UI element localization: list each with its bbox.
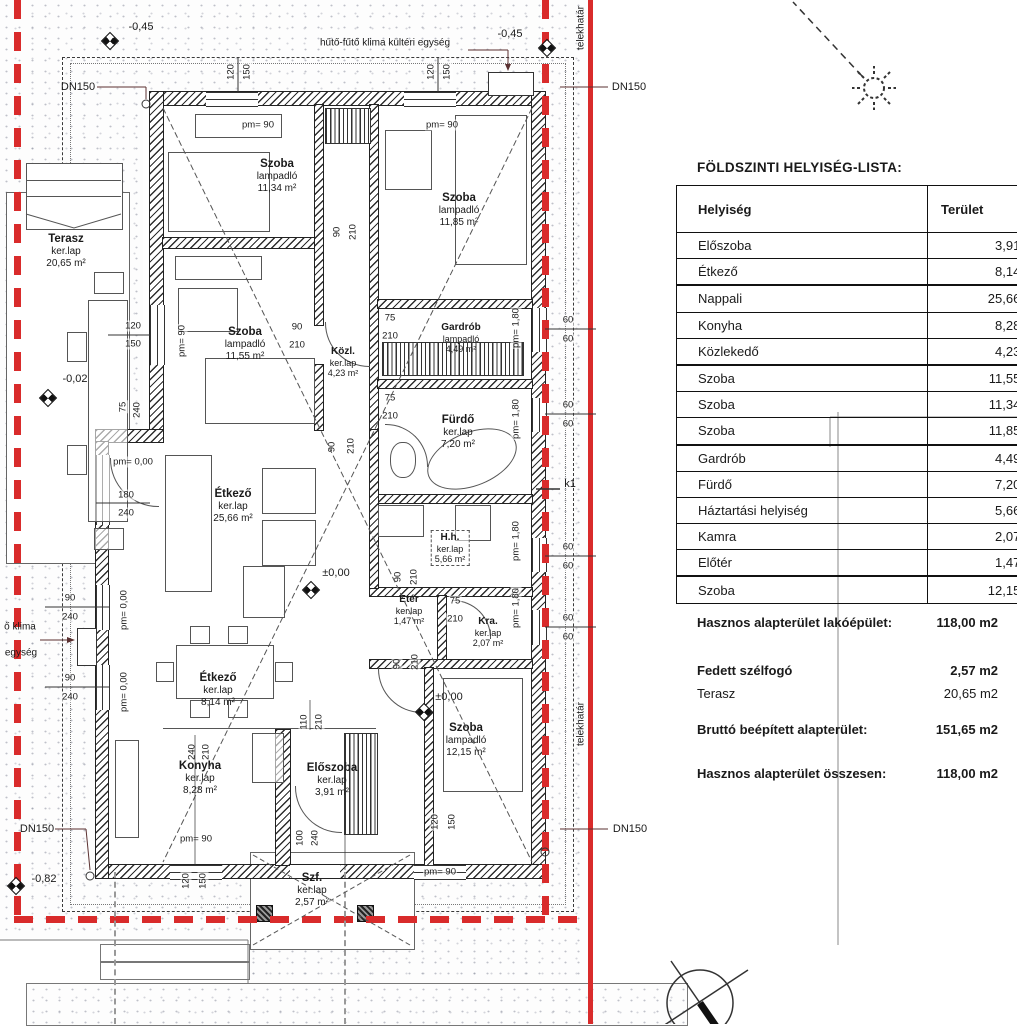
klima-outdoor-unit [488, 72, 534, 96]
dimension-label: 210 [381, 331, 399, 342]
annotation-label: telekhatár [576, 702, 587, 746]
coffee-table [243, 566, 285, 618]
annotation-label: hűtő-fűtő klima kültéri egység [320, 38, 450, 49]
dimension-label: 90 [64, 673, 77, 684]
dimension-label: 75 [118, 401, 129, 414]
site-plan-page: { "colors":{"boundary_red":"#d92b2b","wa… [0, 0, 1017, 1024]
dimension-label: pm= 0,00 [119, 671, 130, 713]
wardrobe [325, 108, 371, 144]
room-list-title: FÖLDSZINTI HELYISÉG-LISTA: [697, 160, 902, 175]
annotation-label: egység [5, 648, 37, 659]
room-area-cell: 4,49 m2 [928, 445, 1017, 472]
room-area: 8,14 m² [199, 697, 236, 709]
table-row: Szoba 11,34 m2 [677, 392, 1017, 418]
room-name: H.h. [435, 532, 466, 544]
room-area-cell: 1,47 m2 [928, 550, 1017, 577]
room-floor-type: ker.lap [435, 544, 466, 554]
table-row: Konyha 8,28 m2 [677, 312, 1017, 338]
room-floor-type: lampadló [441, 334, 480, 344]
room-list-panel: FÖLDSZINTI HELYISÉG-LISTA: Helyiség Terü… [660, 0, 1017, 1024]
room-name: Fürdő [441, 414, 475, 427]
dimension-label: 180 [117, 490, 135, 501]
dimension-label: pm= 90 [425, 120, 459, 131]
armchair [262, 520, 316, 566]
dimension-label: 210 [410, 653, 421, 671]
annotation-label: DN150 [613, 823, 647, 835]
annotation-label: -0,45 [128, 21, 153, 33]
room-label: Kra. ker.lap 2,07 m² [473, 616, 504, 648]
klima-outdoor-unit [77, 628, 97, 666]
room-floor-type: lampadló [446, 735, 487, 747]
annotation-label: ±0,00 [322, 567, 349, 579]
dimension-label: 150 [124, 339, 142, 350]
summary-label: Hasznos alapterület lakóépület: [697, 615, 892, 630]
dimension-label: 60 [562, 542, 575, 553]
chair [275, 662, 293, 682]
dimension-label: 240 [187, 743, 198, 761]
room-label: Szoba lampadló 12,15 m² [446, 722, 487, 758]
room-name: Szf. [295, 872, 329, 885]
partition [163, 238, 318, 248]
dimension-label: pm= 1,80 [511, 587, 522, 629]
sink [378, 505, 424, 537]
dimension-label: 75 [384, 313, 397, 324]
annotation-label: -0,82 [31, 873, 56, 885]
room-name-cell: Előtér [677, 550, 928, 577]
dimension-label: 90 [327, 441, 338, 454]
armchair [262, 468, 316, 514]
annotation-label: -0,02 [62, 373, 87, 385]
room-area-cell: 11,34 m2 [928, 392, 1017, 418]
room-label: Szf. ker.lap 2,57 m² [295, 872, 329, 908]
dimension-label: 60 [562, 315, 575, 326]
bed [168, 152, 270, 232]
room-name-cell: Étkező [677, 259, 928, 286]
bed [455, 115, 527, 265]
room-area-cell: 11,85 m2 [928, 418, 1017, 445]
window [150, 305, 165, 365]
dimension-label: 240 [117, 508, 135, 519]
room-floor-type: ker.lap [199, 685, 236, 697]
annotation-label: DN150 [61, 81, 95, 93]
room-label: Szoba lampadló 11,85 m² [439, 192, 480, 228]
column-header-room: Helyiség [677, 186, 928, 233]
room-area: 2,07 m² [473, 638, 504, 648]
chair [190, 626, 210, 644]
dimension-label: 210 [381, 411, 399, 422]
dimension-label: pm= 90 [179, 834, 213, 845]
dimension-label: 120 [181, 872, 192, 890]
annotation-label: DN150 [612, 81, 646, 93]
room-floor-type: ker.lap [307, 775, 357, 787]
bed [205, 358, 315, 424]
column-header-area: Terület [928, 186, 1017, 233]
summary-value: 151,65 m2 [936, 722, 998, 737]
room-area: 2,57 m² [295, 897, 329, 909]
guide-dashed [344, 872, 346, 1024]
room-name: Konyha [179, 760, 221, 773]
annotation-label: k1 [564, 478, 576, 490]
room-floor-type: ker.lap [213, 501, 252, 513]
boundary-dashed-bottom [14, 916, 590, 923]
summary-value: 2,57 m2 [950, 663, 998, 678]
room-area-cell: 3,91 m2 [928, 233, 1017, 259]
terrace-chair [94, 528, 124, 550]
room-label: Étkező ker.lap 8,14 m² [199, 672, 236, 708]
room-area: 5,66 m² [435, 554, 466, 564]
property-line-telekhatar [588, 0, 593, 1024]
annotation-label: DN150 [20, 823, 54, 835]
room-label: Szoba lampadló 11,55 m² [225, 326, 266, 362]
dimension-label: 210 [348, 223, 359, 241]
dimension-label: 110 [299, 713, 310, 730]
room-name: Gardrób [441, 322, 480, 334]
dimension-label: 90 [64, 593, 77, 604]
table-row: Előszoba 3,91 m2 [677, 233, 1017, 259]
dimension-label: 210 [409, 568, 420, 586]
room-label: Terasz ker.lap 20,65 m² [46, 233, 85, 269]
dimension-label: 120 [124, 321, 142, 332]
dimension-label: 120 [430, 813, 441, 831]
kitchen-boundary-line [163, 728, 376, 729]
dimension-label: 240 [132, 401, 143, 419]
room-name: Szoba [439, 192, 480, 205]
terrace-chair [67, 445, 87, 475]
room-name-cell: Nappali [677, 285, 928, 312]
terrace-chair [94, 272, 124, 294]
dimension-label: 75 [449, 596, 462, 607]
kitchen-counter [115, 740, 139, 838]
room-area: 11,85 m² [439, 217, 480, 229]
floor-plan-canvas: Terasz ker.lap 20,65 m² Szoba lampadló 1… [0, 0, 660, 1024]
partition [370, 495, 532, 503]
table-row: Étkező 8,14 m2 [677, 259, 1017, 286]
room-floor-type: ker.lap [179, 773, 221, 785]
table-row: Előtér 1,47 m2 [677, 550, 1017, 577]
summary-label: Fedett szélfogó [697, 663, 792, 678]
room-name: Szoba [225, 326, 266, 339]
table-row: Gardrób 4,49 m2 [677, 445, 1017, 472]
dimension-label: 60 [562, 400, 575, 411]
dimension-label: pm= 0,00 [112, 457, 154, 468]
summary-value: 20,65 m2 [944, 686, 998, 701]
room-label: Előszoba ker.lap 3,91 m² [307, 762, 357, 798]
table-row: Szoba 12,15 m2 [677, 576, 1017, 603]
room-name-cell: Közlekedő [677, 338, 928, 365]
dimension-label: 240 [61, 612, 79, 623]
room-floor-type: ker.lap [441, 427, 475, 439]
room-floor-type: ker.lap [394, 606, 425, 616]
table-row: Háztartási helyiség 5,66 m2 [677, 497, 1017, 523]
dimension-label: pm= 1,80 [511, 520, 522, 562]
room-floor-type: ker.lap [473, 628, 504, 638]
room-name: Terasz [46, 233, 85, 246]
window [96, 665, 110, 710]
room-area: 8,28 m² [179, 785, 221, 797]
room-name-cell: Szoba [677, 576, 928, 603]
dimension-label: 100 [295, 829, 306, 847]
step-block [100, 962, 250, 980]
room-name-cell: Előszoba [677, 233, 928, 259]
step-block [100, 944, 250, 962]
dimension-label: 120 [426, 63, 437, 81]
room-label: Közl. ker.lap 4,23 m² [328, 346, 359, 378]
room-name: Étkező [199, 672, 236, 685]
room-name-cell: Szoba [677, 418, 928, 445]
dimension-label: pm= 1,80 [511, 398, 522, 440]
table-row: Szoba 11,85 m2 [677, 418, 1017, 445]
annotation-label: ±0,00 [435, 691, 462, 703]
dimension-label: 150 [442, 63, 453, 81]
room-area: 11,34 m² [257, 183, 298, 195]
room-name: Étkező [213, 488, 252, 501]
window [170, 865, 222, 880]
partition [425, 668, 433, 865]
dimension-label: 210 [446, 614, 464, 625]
window [96, 585, 110, 630]
table-row: Szoba 11,55 m2 [677, 365, 1017, 392]
dimension-label: 210 [288, 340, 306, 351]
dimension-label: 150 [447, 813, 458, 831]
room-name-cell: Gardrób [677, 445, 928, 472]
dimension-label: 90 [392, 658, 403, 671]
annotation-label: telekhatár [576, 6, 587, 50]
sofa [165, 455, 212, 592]
room-area: 20,65 m² [46, 258, 85, 270]
partition [378, 300, 532, 308]
dimension-label: 210 [314, 713, 325, 731]
room-area-cell: 25,66 m2 [928, 285, 1017, 312]
summary-value: 118,00 m2 [937, 766, 998, 781]
room-area: 25,66 m² [213, 513, 252, 525]
room-area-cell: 8,28 m2 [928, 312, 1017, 338]
room-floor-type: ker.lap [46, 246, 85, 258]
dimension-label: 240 [310, 829, 321, 847]
desk [175, 256, 262, 280]
dimension-label: 150 [242, 63, 253, 81]
dimension-label: 60 [562, 613, 575, 624]
wall-left-upper [150, 92, 163, 440]
summary-value: 118,00 m2 [937, 615, 998, 630]
table-row: Kamra 2,07 m2 [677, 524, 1017, 550]
dimension-label: 90 [291, 322, 304, 333]
dimension-label: 210 [346, 437, 357, 455]
room-area-cell: 5,66 m2 [928, 497, 1017, 523]
room-area: 4,49 m² [441, 344, 480, 354]
room-list-table: Helyiség Terület Előszoba 3,91 m2 Étkező… [676, 185, 1017, 604]
table-row: Nappali 25,66 m2 [677, 285, 1017, 312]
dimension-label: 60 [562, 334, 575, 345]
room-floor-type: lampadló [257, 171, 298, 183]
dimension-label: pm= 90 [423, 867, 457, 878]
partition [438, 596, 446, 665]
dimension-label: pm= 1,80 [511, 307, 522, 349]
room-name-cell: Kamra [677, 524, 928, 550]
partition [370, 430, 378, 588]
partition [370, 105, 378, 430]
boundary-dashed-right [542, 0, 549, 920]
room-name-cell: Háztartási helyiség [677, 497, 928, 523]
table-row: Fürdő 7,20 m2 [677, 471, 1017, 497]
room-area: 11,55 m² [225, 351, 266, 363]
chair [228, 626, 248, 644]
desk [385, 130, 432, 190]
dimension-label: 150 [198, 872, 209, 890]
room-name-cell: Fürdő [677, 471, 928, 497]
room-label: H.h. ker.lap 5,66 m² [431, 530, 470, 566]
pergola-line [26, 196, 121, 197]
dimension-label: 120 [226, 63, 237, 81]
room-area: 4,23 m² [328, 368, 359, 378]
table-row: Közlekedő 4,23 m2 [677, 338, 1017, 365]
annotation-label: -0,45 [497, 28, 522, 40]
room-label: Fürdő ker.lap 7,20 m² [441, 414, 475, 450]
dimension-label: 240 [61, 692, 79, 703]
room-label: Etér ker.lap 1,47 m² [394, 594, 425, 626]
room-floor-type: ker.lap [295, 885, 329, 897]
summary-label: Hasznos alapterület összesen: [697, 766, 886, 781]
chair [156, 662, 174, 682]
room-name-cell: Konyha [677, 312, 928, 338]
room-area-cell: 12,15 m2 [928, 576, 1017, 603]
stove [252, 733, 284, 783]
dimension-label: pm= 90 [241, 120, 275, 131]
room-name: Közl. [328, 346, 359, 358]
dimension-label: 60 [562, 561, 575, 572]
summary-label: Terasz [697, 686, 735, 701]
room-name: Kra. [473, 616, 504, 628]
room-name: Etér [394, 594, 425, 606]
room-label: Étkező ker.lap 25,66 m² [213, 488, 252, 524]
annotation-label: ő klima [4, 622, 36, 633]
dimension-label: 75 [384, 393, 397, 404]
room-floor-type: lampadló [439, 205, 480, 217]
room-name: Előszoba [307, 762, 357, 775]
room-area-cell: 11,55 m2 [928, 365, 1017, 392]
dimension-label: 90 [332, 226, 343, 239]
room-label: Szoba lampadló 11,34 m² [257, 158, 298, 194]
dimension-label: 90 [393, 571, 404, 584]
window [404, 92, 456, 107]
room-floor-type: ker.lap [328, 358, 359, 368]
room-area: 7,20 m² [441, 439, 475, 451]
room-area: 3,91 m² [307, 787, 357, 799]
room-name: Szoba [257, 158, 298, 171]
terrace-chair [67, 332, 87, 362]
room-area-cell: 2,07 m2 [928, 524, 1017, 550]
room-area-cell: 8,14 m2 [928, 259, 1017, 286]
dimension-label: pm= 0,00 [119, 589, 130, 631]
dimension-label: 210 [201, 743, 212, 761]
dimension-label: 60 [562, 419, 575, 430]
window [206, 92, 258, 107]
partition [315, 365, 323, 430]
guide-dashed [114, 872, 116, 1024]
room-area: 1,47 m² [394, 616, 425, 626]
partition [315, 105, 323, 325]
room-name-cell: Szoba [677, 392, 928, 418]
room-area-cell: 4,23 m2 [928, 338, 1017, 365]
summary-label: Bruttó beépített alapterület: [697, 722, 867, 737]
boundary-dashed-left [14, 0, 21, 920]
room-name: Szoba [446, 722, 487, 735]
pergola-line [26, 180, 121, 181]
room-label: Gardrób lampadló 4,49 m² [441, 322, 480, 354]
room-label: Konyha ker.lap 8,28 m² [179, 760, 221, 796]
room-area: 12,15 m² [446, 747, 487, 759]
room-area-cell: 7,20 m2 [928, 471, 1017, 497]
dimension-label: 60 [562, 632, 575, 643]
dimension-label: pm= 90 [177, 324, 188, 358]
room-floor-type: lampadló [225, 339, 266, 351]
room-name-cell: Szoba [677, 365, 928, 392]
partition [378, 380, 532, 388]
